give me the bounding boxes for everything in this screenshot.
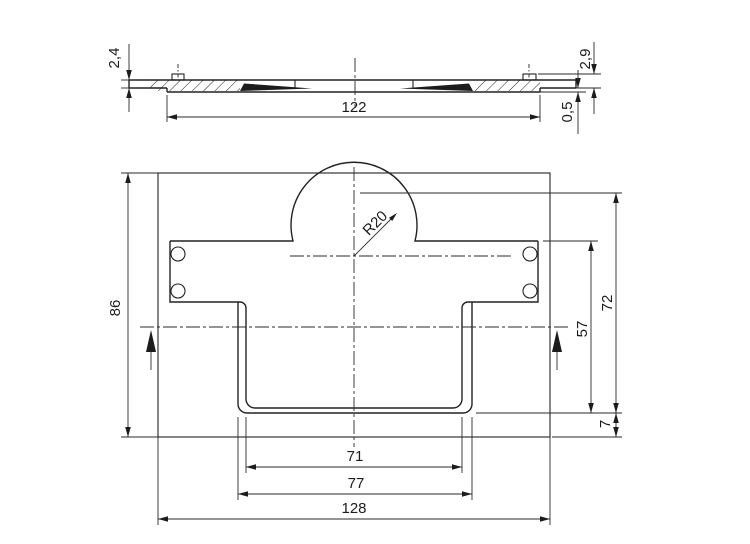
dim-label-step-depth: 0,5 <box>559 102 576 123</box>
dim-label-dome-radius: R20 <box>360 208 391 239</box>
section-view: 2,4 2,9 0,5 122 <box>106 42 601 134</box>
sealant-wedge-right <box>400 84 473 92</box>
screw-hole-bottom-left <box>171 284 185 298</box>
dim-label-total-thickness: 2,9 <box>577 49 594 70</box>
dimension-bottom-gap: 7 <box>552 413 622 437</box>
dimension-dome-height: 72 <box>360 193 622 413</box>
hatch-area-right <box>475 80 540 91</box>
sealant-wedge-left <box>240 84 312 92</box>
hatch-area-left <box>150 80 240 91</box>
dim-label-bottom-gap: 7 <box>597 420 614 428</box>
section-arrow-right <box>552 330 562 370</box>
dim-label-dome-height: 72 <box>599 295 616 312</box>
section-arrow-left <box>146 330 156 370</box>
front-view: R20 86 57 72 7 <box>107 162 622 525</box>
outer-cup-contour <box>238 302 472 413</box>
dimension-dome-radius: R20 <box>354 208 397 256</box>
dim-label-plate-thickness: 2,4 <box>106 48 123 69</box>
technical-drawing: 2,4 2,9 0,5 122 <box>0 0 750 544</box>
dim-label-cup-height: 57 <box>574 321 591 338</box>
screw-hole-top-right <box>523 247 537 261</box>
screw-hole-top-left <box>171 247 185 261</box>
dim-label-plate-width: 128 <box>341 500 366 517</box>
screw-hole-bottom-right <box>523 284 537 298</box>
dimension-plate-height: 86 <box>107 173 158 437</box>
dim-label-cup-inner-width: 71 <box>347 448 364 465</box>
dim-label-cup-outer-width: 77 <box>348 475 365 492</box>
dimension-recess-width: 122 <box>167 95 540 122</box>
dimension-plate-thickness: 2,4 <box>106 44 137 112</box>
dim-label-recess-width: 122 <box>341 99 366 116</box>
dim-label-plate-height: 86 <box>107 300 124 317</box>
clip-right <box>523 74 536 80</box>
